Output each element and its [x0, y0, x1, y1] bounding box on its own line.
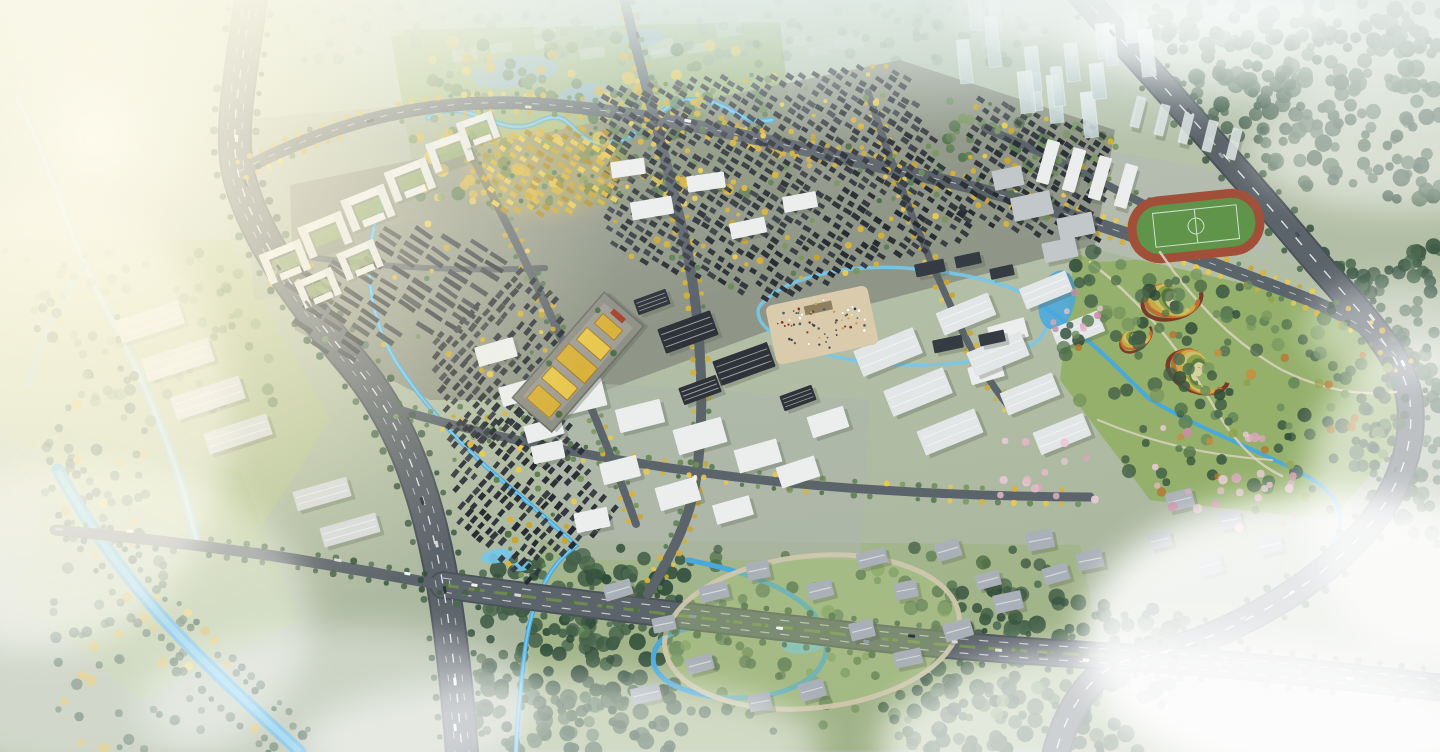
- aerial-rendering-stage: Aerial rendering of an urban master plan…: [0, 0, 1440, 752]
- light-wash: [0, 0, 1440, 752]
- atmosphere: [0, 0, 1440, 752]
- aerial-masterplan-rendering: Aerial rendering of an urban master plan…: [0, 0, 1440, 752]
